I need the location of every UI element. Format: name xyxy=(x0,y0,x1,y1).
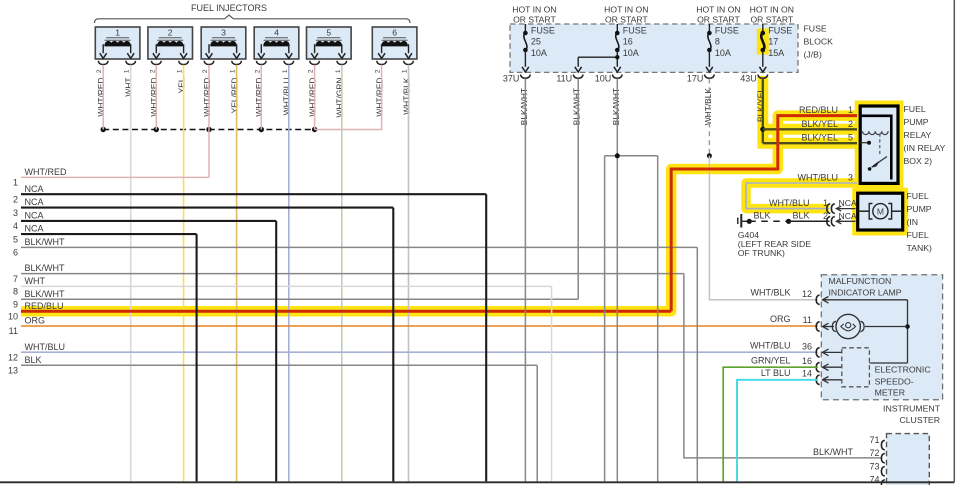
svg-text:2: 2 xyxy=(149,69,156,73)
svg-text:16: 16 xyxy=(802,356,812,366)
svg-text:16: 16 xyxy=(623,37,633,47)
svg-text:BLK/WHT: BLK/WHT xyxy=(25,289,66,299)
svg-text:FUSE: FUSE xyxy=(768,26,792,36)
svg-text:73: 73 xyxy=(869,461,879,471)
svg-text:1: 1 xyxy=(823,198,828,208)
svg-text:2: 2 xyxy=(202,69,209,73)
svg-text:OR START: OR START xyxy=(697,14,740,24)
svg-text:CLUSTER: CLUSTER xyxy=(899,415,940,425)
svg-text:OR START: OR START xyxy=(750,14,793,24)
svg-text:OF TRUNK): OF TRUNK) xyxy=(738,248,785,258)
svg-text:BLK/WHT: BLK/WHT xyxy=(572,88,582,125)
svg-text:FUSE: FUSE xyxy=(531,26,555,36)
svg-text:GRN/YEL: GRN/YEL xyxy=(751,355,791,365)
svg-text:WHT/BLK: WHT/BLK xyxy=(750,288,790,298)
svg-text:BLK/WHT: BLK/WHT xyxy=(813,447,854,457)
svg-text:WHT/GRN: WHT/GRN xyxy=(335,78,345,118)
svg-text:WHT/RED: WHT/RED xyxy=(25,167,67,177)
svg-text:RED/BLU: RED/BLU xyxy=(25,301,64,311)
svg-text:BLK/WHT: BLK/WHT xyxy=(611,88,621,125)
svg-text:BLK: BLK xyxy=(754,211,771,221)
svg-text:11: 11 xyxy=(803,315,812,325)
svg-text:4: 4 xyxy=(274,28,279,38)
svg-text:WHT/RED: WHT/RED xyxy=(254,78,264,117)
svg-text:10U: 10U xyxy=(595,74,612,84)
svg-text:12: 12 xyxy=(802,289,812,299)
svg-text:1: 1 xyxy=(177,69,184,73)
svg-text:11U: 11U xyxy=(556,74,572,84)
svg-text:LT BLU: LT BLU xyxy=(761,368,791,378)
svg-text:4: 4 xyxy=(13,221,18,231)
svg-text:1: 1 xyxy=(230,69,237,73)
svg-text:SPEEDO-: SPEEDO- xyxy=(875,377,914,387)
svg-text:BLOCK: BLOCK xyxy=(804,37,834,47)
svg-text:1: 1 xyxy=(124,69,131,73)
svg-text:WHT/RED: WHT/RED xyxy=(307,78,317,117)
svg-text:FUEL INJECTORS: FUEL INJECTORS xyxy=(191,3,267,13)
svg-text:RED/BLU: RED/BLU xyxy=(799,105,838,115)
svg-text:10A: 10A xyxy=(623,48,639,58)
svg-text:BOX 2): BOX 2) xyxy=(904,156,933,166)
svg-text:2: 2 xyxy=(823,211,828,221)
svg-text:17U: 17U xyxy=(687,74,704,84)
svg-text:8: 8 xyxy=(13,287,18,297)
svg-text:OR START: OR START xyxy=(605,14,648,24)
svg-text:37U: 37U xyxy=(503,74,520,84)
svg-text:BLK/YEL: BLK/YEL xyxy=(801,119,838,129)
svg-text:FUSE: FUSE xyxy=(804,24,827,34)
svg-text:NCA: NCA xyxy=(839,198,857,208)
svg-text:WHT/RED: WHT/RED xyxy=(374,78,384,117)
svg-text:5: 5 xyxy=(13,234,18,244)
svg-text:2: 2 xyxy=(375,69,382,73)
svg-text:NCA: NCA xyxy=(839,211,857,221)
svg-text:25: 25 xyxy=(531,37,541,47)
svg-text:2: 2 xyxy=(96,69,103,73)
svg-text:WHT/BLU: WHT/BLU xyxy=(25,342,66,352)
svg-text:WHT/BLK: WHT/BLK xyxy=(401,77,411,115)
svg-text:HOT IN ON: HOT IN ON xyxy=(750,4,794,14)
svg-text:WHT/BLU: WHT/BLU xyxy=(798,173,839,183)
svg-text:1: 1 xyxy=(848,105,853,115)
svg-text:BLK/WHT: BLK/WHT xyxy=(25,263,66,273)
svg-text:MALFUNCTION: MALFUNCTION xyxy=(829,276,892,286)
svg-text:3: 3 xyxy=(848,173,853,183)
svg-text:INDICATOR LAMP: INDICATOR LAMP xyxy=(829,287,902,297)
svg-text:13: 13 xyxy=(8,366,18,376)
svg-text:12: 12 xyxy=(8,352,18,362)
svg-text:2: 2 xyxy=(848,119,853,129)
svg-text:WHT/RED: WHT/RED xyxy=(202,78,212,117)
svg-text:14: 14 xyxy=(802,369,812,379)
svg-text:5: 5 xyxy=(848,133,853,143)
svg-text:RELAY: RELAY xyxy=(904,130,932,140)
svg-text:FUEL: FUEL xyxy=(904,104,926,114)
svg-text:PUMP: PUMP xyxy=(904,117,929,127)
svg-text:BLK: BLK xyxy=(25,355,42,365)
svg-text:FUEL: FUEL xyxy=(907,191,929,201)
svg-text:ELECTRONIC: ELECTRONIC xyxy=(875,365,931,375)
svg-text:INSTRUMENT: INSTRUMENT xyxy=(883,404,941,414)
svg-text:71: 71 xyxy=(869,435,879,445)
svg-text:BLK/WHT: BLK/WHT xyxy=(25,237,66,247)
svg-text:3: 3 xyxy=(13,208,18,218)
svg-text:10: 10 xyxy=(8,312,18,322)
svg-text:5: 5 xyxy=(326,28,331,38)
svg-text:7: 7 xyxy=(13,274,18,284)
svg-text:WHT/RED: WHT/RED xyxy=(149,78,159,117)
svg-text:BLK/YEL: BLK/YEL xyxy=(801,133,838,143)
svg-text:ORG: ORG xyxy=(770,314,791,324)
svg-text:36: 36 xyxy=(802,341,812,351)
svg-text:WHT/BLK: WHT/BLK xyxy=(703,88,713,126)
svg-text:1: 1 xyxy=(335,69,342,73)
svg-text:WHT: WHT xyxy=(124,78,134,97)
svg-text:HOT IN ON: HOT IN ON xyxy=(696,4,740,14)
svg-text:ORG: ORG xyxy=(25,316,46,326)
svg-text:10A: 10A xyxy=(715,48,731,58)
svg-text:2: 2 xyxy=(13,194,18,204)
svg-text:FUSE: FUSE xyxy=(623,26,647,36)
svg-text:FUEL: FUEL xyxy=(907,230,929,240)
svg-text:17: 17 xyxy=(768,37,778,47)
svg-text:WHT/RED: WHT/RED xyxy=(96,78,106,117)
svg-text:15A: 15A xyxy=(768,48,784,58)
svg-text:2: 2 xyxy=(254,69,261,73)
svg-text:10A: 10A xyxy=(531,48,547,58)
svg-text:6: 6 xyxy=(392,28,397,38)
svg-text:3: 3 xyxy=(221,28,226,38)
svg-text:OR START: OR START xyxy=(513,14,556,24)
svg-text:FUSE: FUSE xyxy=(715,26,739,36)
svg-text:TANK): TANK) xyxy=(907,243,933,253)
svg-text:(IN RELAY: (IN RELAY xyxy=(904,143,946,153)
svg-text:6: 6 xyxy=(13,248,18,258)
svg-text:PUMP: PUMP xyxy=(907,204,932,214)
svg-text:NCA: NCA xyxy=(25,184,44,194)
svg-text:M: M xyxy=(877,207,884,217)
svg-text:WHT: WHT xyxy=(25,276,46,286)
svg-text:1: 1 xyxy=(115,28,120,38)
svg-text:NCA: NCA xyxy=(25,224,44,234)
svg-text:2: 2 xyxy=(308,69,315,73)
svg-text:72: 72 xyxy=(869,448,879,458)
svg-text:NCA: NCA xyxy=(25,197,44,207)
svg-text:WHT/BLU: WHT/BLU xyxy=(750,341,791,351)
svg-text:WHT/BLU: WHT/BLU xyxy=(282,78,292,116)
svg-text:11: 11 xyxy=(9,326,18,336)
svg-text:BLK: BLK xyxy=(793,211,810,221)
svg-text:METER: METER xyxy=(875,388,905,398)
svg-text:8: 8 xyxy=(715,37,720,47)
svg-text:1: 1 xyxy=(13,178,18,188)
svg-text:1: 1 xyxy=(282,69,289,73)
svg-text:YEL/RED: YEL/RED xyxy=(229,78,239,114)
svg-text:HOT IN ON: HOT IN ON xyxy=(604,4,648,14)
svg-text:(IN: (IN xyxy=(907,217,919,227)
svg-text:9: 9 xyxy=(13,299,18,309)
svg-text:NCA: NCA xyxy=(25,211,44,221)
svg-text:BLK/WHT: BLK/WHT xyxy=(519,88,529,125)
svg-text:HOT IN ON: HOT IN ON xyxy=(512,4,556,14)
svg-text:1: 1 xyxy=(402,69,409,73)
svg-text:WHT/BLU: WHT/BLU xyxy=(769,198,810,208)
svg-text:YEL: YEL xyxy=(176,77,186,93)
svg-text:43U: 43U xyxy=(740,74,757,84)
svg-text:(J/B): (J/B) xyxy=(804,50,822,60)
svg-text:2: 2 xyxy=(168,28,173,38)
